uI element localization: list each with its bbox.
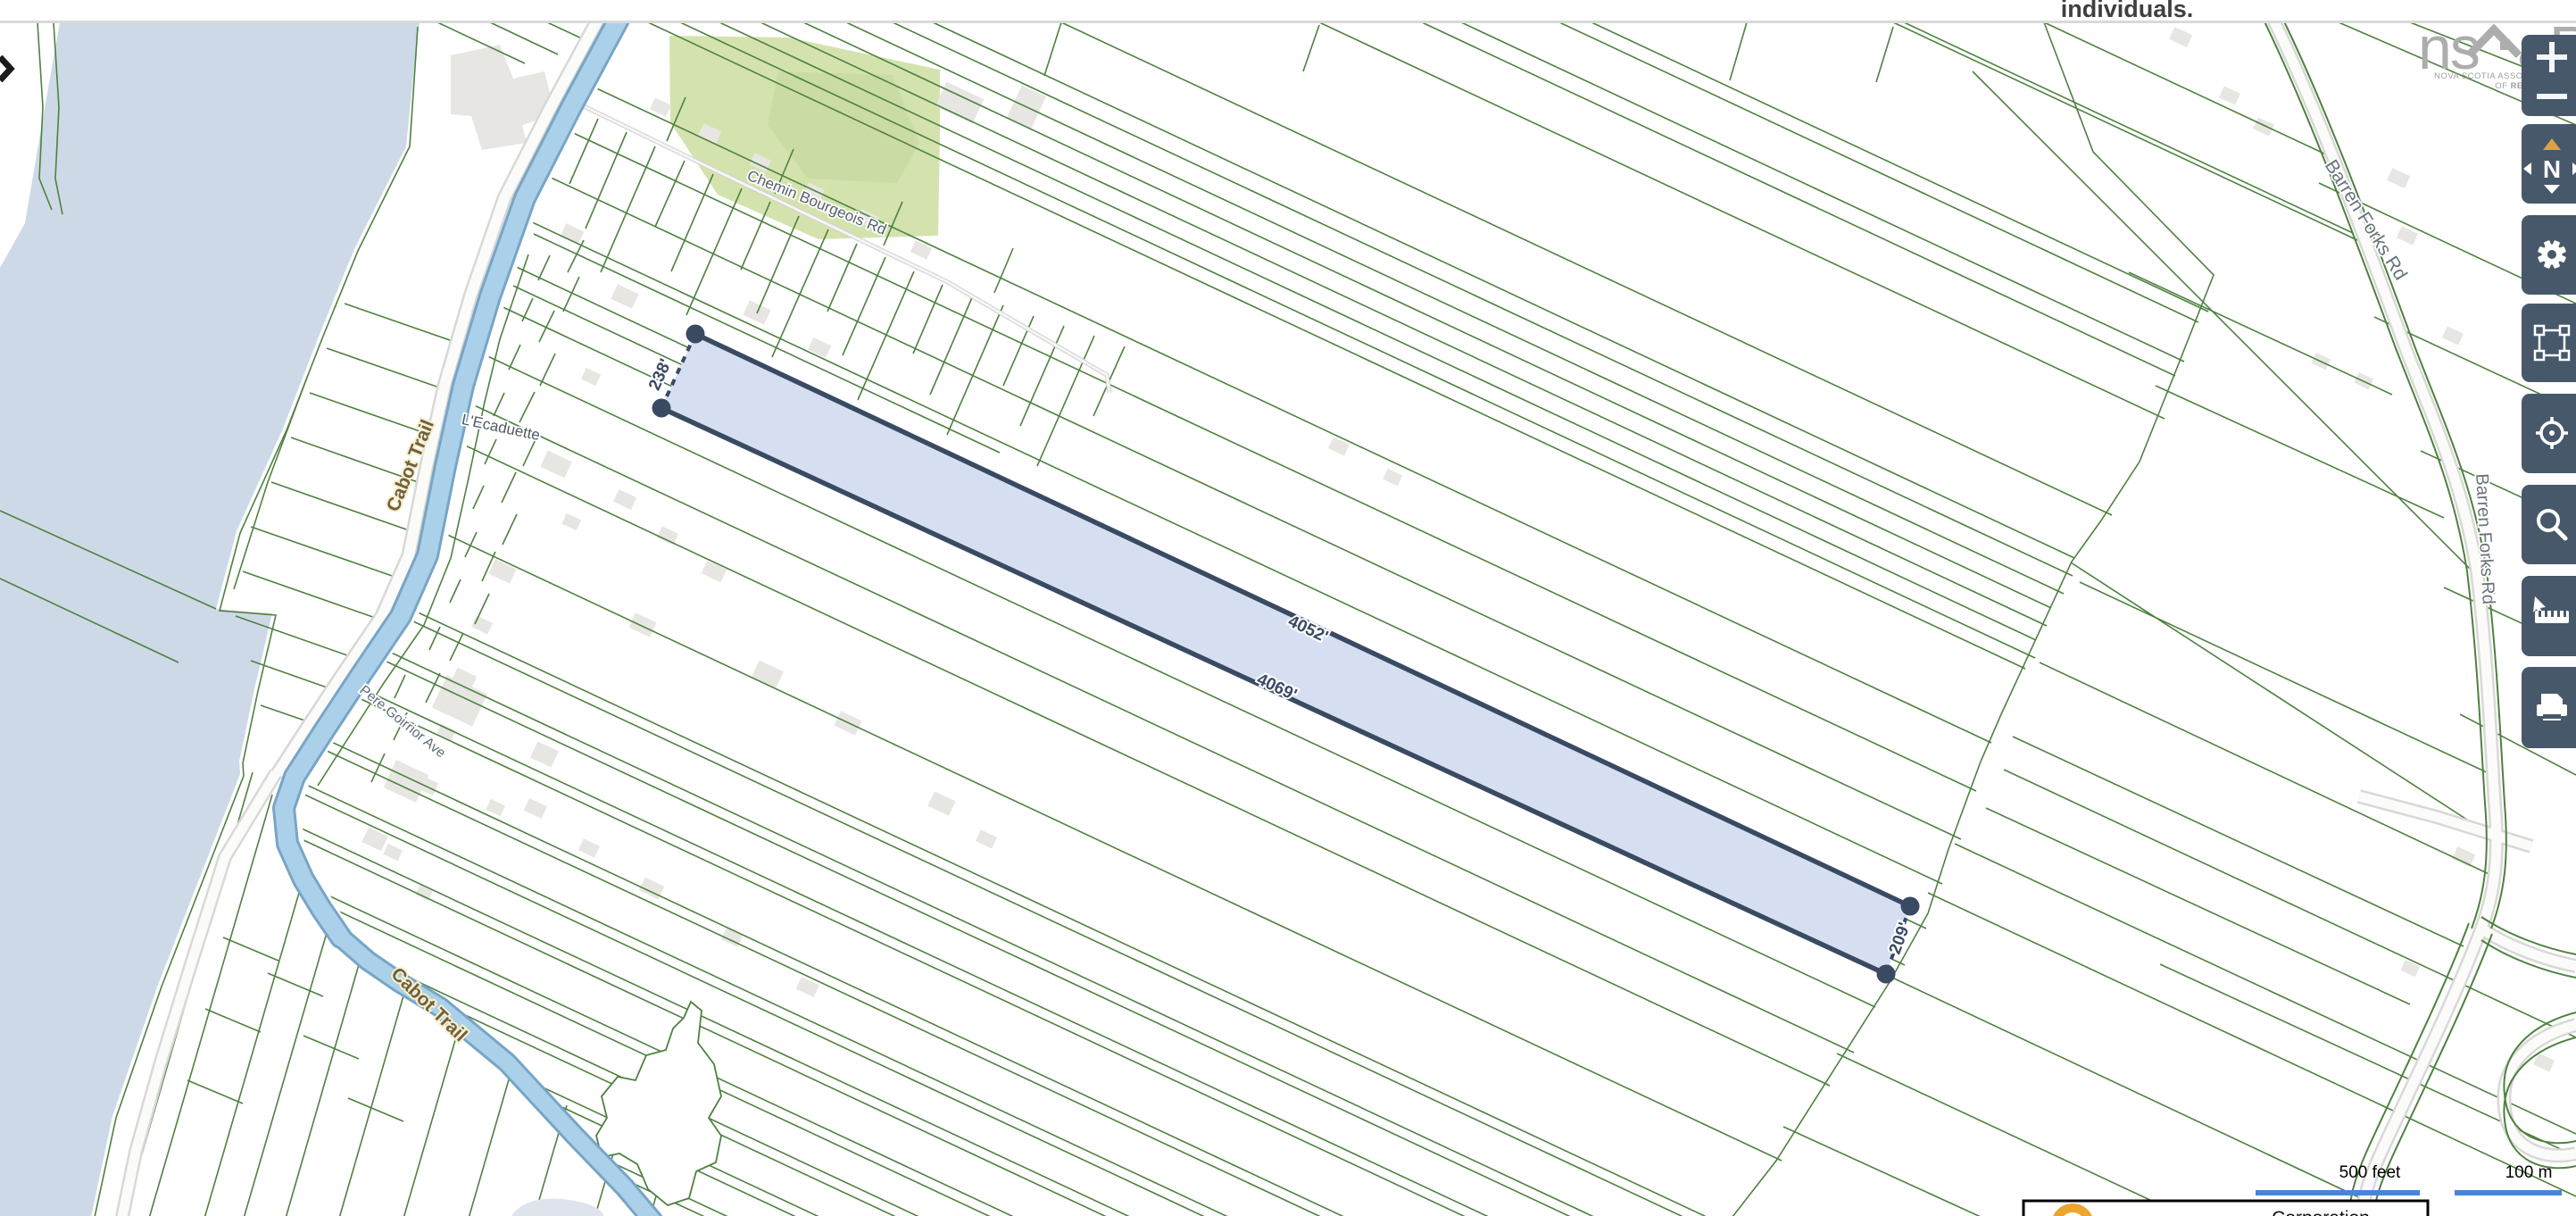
svg-text:N: N (2543, 155, 2561, 183)
svg-text:100 m: 100 m (2505, 1163, 2553, 1182)
svg-text:individuals.: individuals. (2061, 0, 2194, 22)
svg-text:Corporation: Corporation (2272, 1208, 2370, 1216)
svg-text:500 feet: 500 feet (2339, 1163, 2401, 1182)
